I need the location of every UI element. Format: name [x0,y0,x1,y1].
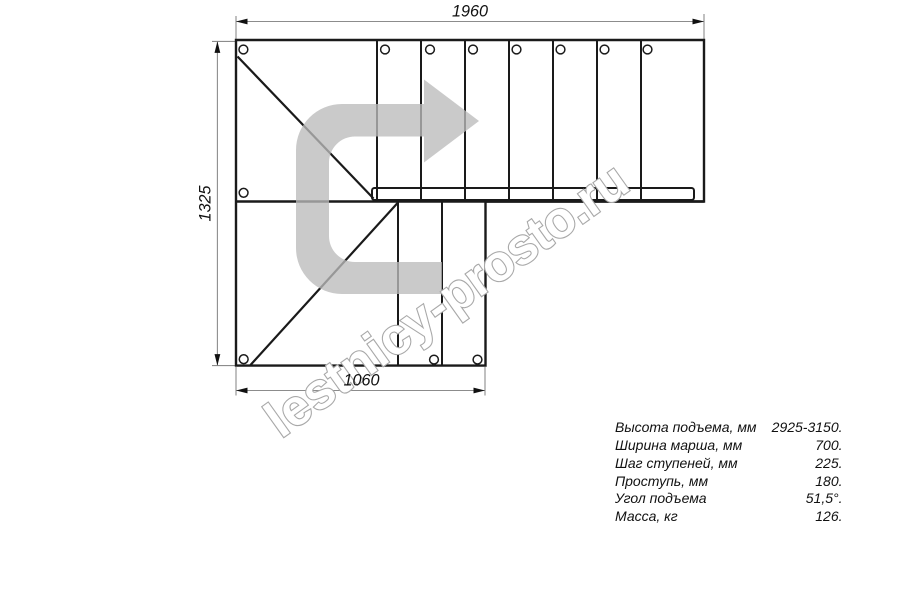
svg-text:700.: 700. [815,437,842,453]
svg-text:1060: 1060 [343,372,379,390]
svg-text:Высота подъема, мм: Высота подъема, мм [615,419,757,435]
svg-text:51,5°.: 51,5°. [806,490,843,506]
svg-text:126.: 126. [815,508,842,524]
svg-text:225.: 225. [814,455,842,471]
svg-text:1960: 1960 [452,2,488,20]
svg-text:Масса, кг: Масса, кг [615,508,678,524]
svg-text:2925-3150.: 2925-3150. [771,419,843,435]
svg-text:Ширина марша, мм: Ширина марша, мм [615,437,743,453]
svg-text:Проступь, мм: Проступь, мм [615,473,709,489]
svg-text:1325: 1325 [197,184,215,221]
svg-text:Угол подъема: Угол подъема [614,490,707,506]
svg-text:Шаг ступеней, мм: Шаг ступеней, мм [615,455,738,471]
svg-text:180.: 180. [815,473,842,489]
